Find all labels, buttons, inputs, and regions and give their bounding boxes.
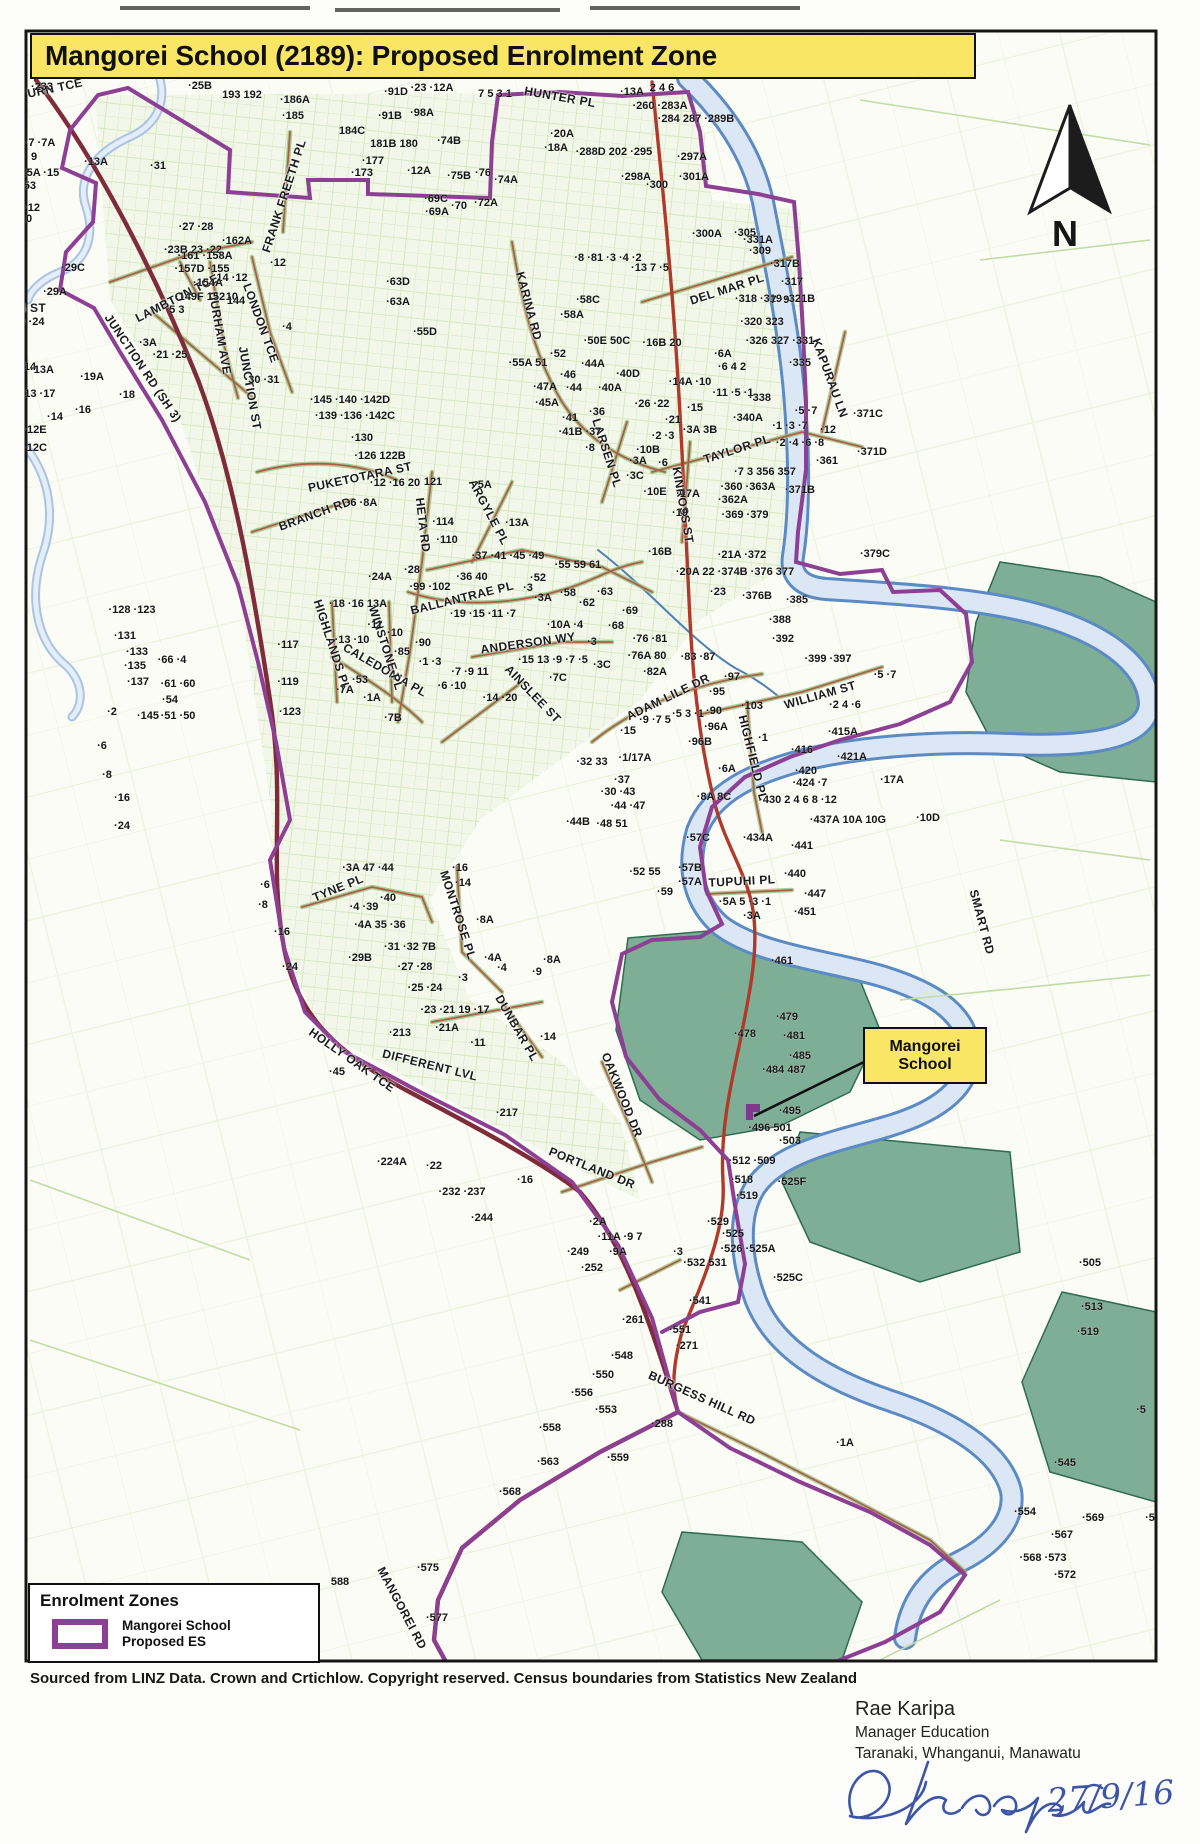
legend-item-label-line2: Proposed ES xyxy=(122,1634,206,1649)
lot-label: ·529 xyxy=(707,1216,729,1228)
lot-label: ·110 xyxy=(436,534,457,546)
lot-label: ·5A 5 ·3 ·1 xyxy=(719,896,771,908)
lot-label: ·3A xyxy=(629,455,647,467)
lot-label: ·569 xyxy=(1082,1512,1104,1524)
lot-label: ·512 ·509 xyxy=(728,1155,775,1167)
scan-artifacts xyxy=(120,8,800,10)
lot-label: ·26 ·22 xyxy=(635,398,670,410)
lot-label: ·76 xyxy=(475,167,491,179)
lot-label: ·3A 47 ·44 xyxy=(342,862,394,874)
lot-label: ·98A xyxy=(410,107,434,119)
lot-label: ·145 xyxy=(137,710,159,722)
lot-label: ·288 xyxy=(651,1418,673,1430)
street-label: S ST xyxy=(25,301,46,315)
lot-label: ·18 ·16 13A xyxy=(329,598,387,610)
lot-label: ·12 xyxy=(820,424,836,436)
lot-label: ·23 ·21 19 ·17 xyxy=(420,1004,489,1016)
lot-label: ·3A xyxy=(534,592,552,604)
lot-label: ·261 xyxy=(622,1314,644,1326)
lot-label: ·558 xyxy=(539,1422,561,1434)
lot-label: 588 xyxy=(331,1576,349,1588)
lot-label: ·90 xyxy=(706,705,722,717)
lot-label: ·4A 35 ·36 xyxy=(354,919,406,931)
lot-label: ·10E xyxy=(643,486,666,498)
lot-label: ·485 xyxy=(789,1050,811,1062)
lot-label: ·6 xyxy=(97,740,107,752)
lot-label: ·7 ·7A xyxy=(25,137,55,149)
lot-label: 181B 180 xyxy=(370,138,418,150)
lot-label: ·21 xyxy=(665,414,681,426)
lot-label: ·68 xyxy=(608,620,624,632)
lot-label: ·447 xyxy=(804,888,826,900)
lot-label: ·3A xyxy=(743,910,761,922)
lot-label: ·232 ·237 xyxy=(438,1186,485,1198)
lot-label: ·13A xyxy=(30,364,54,376)
lot-label: ·244 xyxy=(471,1212,493,1224)
lot-label: ·74A xyxy=(494,174,518,186)
lot-label: ·161 ·158A xyxy=(177,250,232,262)
lot-label: ·4 xyxy=(282,321,292,333)
lot-label: ·57B xyxy=(678,862,702,874)
lot-label: ·1 ·3 xyxy=(419,656,442,668)
lot-label: ·518 xyxy=(731,1174,753,1186)
lot-label: ·376B xyxy=(742,590,772,602)
lot-label: ·1A xyxy=(836,1437,854,1449)
street-label: TAYLOR PL xyxy=(702,432,773,467)
lot-label: ·50E 50C xyxy=(584,335,630,347)
lot-label: ·70 xyxy=(451,200,467,212)
lot-label: ·301A xyxy=(679,171,709,183)
lot-label: 0 ·24 xyxy=(25,316,45,328)
lot-label: ·10A ·4 xyxy=(547,619,583,631)
lot-label: ·284 287 ·289B xyxy=(658,113,734,125)
lot-label: ·559 xyxy=(607,1452,629,1464)
lot-label: ·126 122B xyxy=(354,450,405,462)
lot-label: ·16 xyxy=(75,404,91,416)
lot-label: ·513 xyxy=(1081,1301,1103,1313)
lot-label: ·6A xyxy=(714,348,732,360)
source-note: Sourced from LINZ Data. Crown and Crtich… xyxy=(30,1670,1170,1687)
school-callout-line2: School xyxy=(898,1056,951,1074)
lot-label: ·479 xyxy=(776,1011,798,1023)
lot-label: ·11 ·5 ·1 xyxy=(713,387,754,399)
lot-label: ·379C xyxy=(860,548,890,560)
lot-label: ·424 ·7 xyxy=(793,777,828,789)
lot-label: ·31 ·32 7B xyxy=(384,941,436,953)
lot-label: ·3C xyxy=(593,659,611,671)
lot-label: ·139 ·136 ·142C xyxy=(315,410,395,422)
lot-label: ·96A xyxy=(704,721,728,733)
street-label: HETA RD xyxy=(413,497,434,553)
lot-label: ·25B xyxy=(188,80,212,92)
lot-label: ·3 xyxy=(587,636,597,648)
lot-label: ·317 xyxy=(781,276,803,288)
lot-label: ·31 xyxy=(150,160,166,172)
lot-label: ·91D xyxy=(384,86,408,98)
street-label: KARINA RD xyxy=(513,270,545,342)
lot-label: 193 192 xyxy=(222,89,262,101)
legend-heading: Enrolment Zones xyxy=(40,1591,308,1611)
lot-label: ·572 xyxy=(1054,1569,1076,1581)
lot-label: ·69 xyxy=(622,605,638,617)
lot-label: ·362A xyxy=(718,494,748,506)
lot-label: ·260 ·283A xyxy=(632,100,687,112)
lot-label: ·21A xyxy=(435,1022,459,1034)
lot-label: ·27 ·28 xyxy=(179,221,214,233)
lot-label: ·58 xyxy=(560,587,576,599)
lot-label: ·10B xyxy=(636,444,660,456)
lot-label: ·20A xyxy=(550,128,574,140)
lot-label: ·525C xyxy=(773,1272,803,1284)
lot-label: ·18 xyxy=(119,389,135,401)
lot-label: ·90 xyxy=(415,637,431,649)
lot-label: ·300A xyxy=(692,228,722,240)
lot-label: ·14 xyxy=(455,877,471,889)
lot-label: ·149F 152 xyxy=(175,291,225,303)
lot-label: ·385 xyxy=(786,594,808,606)
lot-label: ·99 ·102 xyxy=(410,581,451,593)
lot-label: ·15 xyxy=(620,725,636,737)
lot-label: ·130 xyxy=(351,432,373,444)
lot-label: ·36 40 xyxy=(456,571,487,583)
lot-label: ·133 xyxy=(126,646,148,658)
lot-label: ·371B xyxy=(785,484,815,496)
lot-label: ·2 xyxy=(107,706,117,718)
lot-label: ·145 ·140 ·142D xyxy=(310,394,390,406)
lot-label: ·415A xyxy=(828,726,858,738)
lot-label: ·525F xyxy=(778,1176,807,1188)
lot-label: ·3A 3B xyxy=(683,424,717,436)
lot-label: ·25A ·15 xyxy=(25,167,59,179)
signatory-name: Rae Karipa xyxy=(855,1698,1081,1721)
legend-box: Enrolment Zones Mangorei School Proposed… xyxy=(28,1583,320,1663)
lot-label: ·288D 202 ·295 xyxy=(576,146,652,158)
street-label: FRANK FREETH PL xyxy=(259,138,309,255)
lot-label: ·13A xyxy=(505,517,529,529)
lot-label: ·4 xyxy=(497,962,507,974)
scanned-map-page: N URN TCEHUNTER PLLAMBTON TCEDURHAM AVEL… xyxy=(0,0,1200,1844)
lot-label: ·23 xyxy=(710,586,726,598)
legend-item-label-line1: Mangorei School xyxy=(122,1618,231,1633)
signatory-role: Manager Education xyxy=(855,1724,1081,1742)
lot-label: ·525 xyxy=(722,1228,744,1240)
lot-label: ·83 ·87 xyxy=(681,651,716,663)
street-label: BRANCH RD xyxy=(277,494,353,533)
street-label: ANDERSON WY xyxy=(480,629,577,656)
lot-label: ·137 xyxy=(127,676,149,688)
lot-label: 144 xyxy=(227,295,245,307)
lot-label: ·371C xyxy=(853,408,883,420)
lot-label: ·5 ·7 xyxy=(795,405,818,417)
lot-label: ·63 xyxy=(597,586,613,598)
lot-label: ·326 327 ·331 xyxy=(746,335,815,347)
lot-label: ·6 ·10 xyxy=(438,680,467,692)
lot-label: ·8 xyxy=(585,442,595,454)
lot-label: ·6A xyxy=(718,763,736,775)
lot-label: ·103 xyxy=(741,700,763,712)
lot-label: ·55D xyxy=(413,326,437,338)
lot-label: ·3A xyxy=(139,337,157,349)
lot-label: ·30 ·43 xyxy=(601,786,636,798)
lot-label: ·392 xyxy=(772,633,794,645)
lot-label: ·309 xyxy=(749,245,771,257)
lot-label: ·8 xyxy=(102,769,112,781)
lot-label: ·55A 51 xyxy=(509,357,548,369)
lot-label: ·1 ·3 ·7 xyxy=(772,420,807,432)
lot-label: ·62 xyxy=(579,597,595,609)
lot-label: ·1/17A xyxy=(618,752,651,764)
lot-label: ·217 xyxy=(496,1107,518,1119)
lot-label: ·46 xyxy=(560,369,576,381)
lot-label: ·545 xyxy=(1054,1457,1076,1469)
lot-label: ·63A xyxy=(386,296,410,308)
lot-label: ·252 xyxy=(581,1262,603,1274)
lot-label: ·51 ·50 xyxy=(161,710,196,722)
street-label: MANGOREI RD xyxy=(374,1565,429,1652)
lot-label: ·577 xyxy=(426,1612,448,1624)
lot-label: ·360 ·363A xyxy=(720,481,775,493)
lot-label: ·437A 10A 10G xyxy=(810,814,886,826)
lot-label: ·21A ·372 xyxy=(718,549,767,561)
lot-label: ·128 ·123 xyxy=(108,604,155,616)
lot-label: ·119 xyxy=(277,676,298,688)
lot-label: ·66 ·4 xyxy=(158,654,187,666)
lot-label: ·13 ·10 xyxy=(335,634,370,646)
lot-label: ·335 xyxy=(789,357,811,369)
lot-label: ·519 xyxy=(736,1190,758,1202)
lot-label: ·8A 8C xyxy=(697,791,731,803)
lot-label: ·63D xyxy=(386,276,410,288)
lot-label: ·29A xyxy=(43,286,67,298)
lot-label: ·496 501 xyxy=(748,1122,791,1134)
lot-label: ·173 xyxy=(351,167,373,179)
lot-label: ·388 xyxy=(769,614,791,626)
lot-label: ·2 ·3 xyxy=(652,430,675,442)
lot-label: ·526 ·525A xyxy=(720,1243,775,1255)
lot-label: ·6 ·8A xyxy=(347,497,378,509)
lot-label: ·9 xyxy=(532,966,542,978)
street-label: TUPUHI PL xyxy=(708,872,776,889)
lot-label: ·37 xyxy=(614,774,630,786)
lot-label: 2 4 6 xyxy=(650,82,674,94)
map-title-banner: Mangorei School (2189): Proposed Enrolme… xyxy=(30,33,976,79)
lot-label: ·69C xyxy=(424,193,448,205)
lot-label: ·48 51 xyxy=(596,818,627,830)
lot-label: ·29B xyxy=(348,952,372,964)
lot-label: ·3C xyxy=(626,470,644,482)
zone-boundary-swatch xyxy=(52,1619,108,1649)
lot-label: ·117 xyxy=(277,639,298,651)
lot-label: ·21 ·25 xyxy=(153,349,188,361)
lot-label: ·7C xyxy=(549,672,567,684)
lot-label: ·8 xyxy=(258,899,268,911)
street-label: JUNCTION RD (SH 3) xyxy=(102,311,185,424)
lot-label: ·19 xyxy=(672,507,688,519)
lot-label: ·16B xyxy=(648,546,672,558)
lot-label: ·575 xyxy=(417,1562,439,1574)
lot-label: ·371D xyxy=(857,446,887,458)
lot-label: ·18A xyxy=(544,142,568,154)
lot-label: ·59 xyxy=(657,886,673,898)
lot-label: ·541 xyxy=(689,1295,711,1307)
lot-label: ·162A xyxy=(222,235,252,247)
lot-label: ·40D xyxy=(616,368,640,380)
lot-label: ·29C xyxy=(61,262,85,274)
lot-label: ·440 xyxy=(784,868,806,880)
street-label: SMART RD xyxy=(967,888,998,956)
lot-label: ·36 xyxy=(589,406,605,418)
lot-label: ·58C xyxy=(576,294,600,306)
street-label: JUNCTION ST xyxy=(236,345,264,431)
lot-label: ·11 xyxy=(367,619,382,631)
lot-label: ·519 xyxy=(1077,1326,1099,1338)
lot-label: ·484 487 xyxy=(762,1064,805,1076)
lot-label: ·568 ·573 xyxy=(1019,1552,1066,1564)
lot-label: ·7 ·9 xyxy=(767,294,790,306)
lot-label: ·157D ·155 xyxy=(174,263,229,275)
lot-label: ·271 xyxy=(676,1340,698,1352)
lot-label: ·12 xyxy=(270,257,286,269)
lot-label: ·11 xyxy=(470,1037,485,1049)
lot-label: ·12C xyxy=(25,442,47,454)
lot-label: ·45A xyxy=(535,397,559,409)
lot-label: ·9 ·7 5 xyxy=(639,714,671,726)
lot-label: ·186A xyxy=(280,94,310,106)
lot-label: ·6 xyxy=(658,457,668,469)
lot-label: ·249 xyxy=(567,1246,589,1258)
lot-label: ·25 ·24 xyxy=(408,982,443,994)
lot-label: 7 5 3 1 xyxy=(478,88,512,100)
lot-label: ·41B ·37 xyxy=(559,426,602,438)
legend-item-label: Mangorei School Proposed ES xyxy=(122,1618,231,1649)
lot-label: ·7 3 356 357 xyxy=(734,466,796,478)
lot-label: ·52 55 xyxy=(629,866,660,878)
lot-label: ·5 ·7 xyxy=(874,669,897,681)
lot-label: ·14 xyxy=(540,1031,556,1043)
lot-label: ·44 ·47 xyxy=(611,800,646,812)
lot-label: ·23 ·12A xyxy=(411,82,454,94)
lot-label: ·13 ·17 xyxy=(25,388,55,400)
street-label: OAKWOOD DR xyxy=(599,1051,646,1140)
lot-label: ·13 7 ·5 xyxy=(631,262,669,274)
lot-label: ·57C xyxy=(686,832,710,844)
lot-label: ·6 4 2 xyxy=(718,361,746,373)
lot-label: ·75B xyxy=(447,170,471,182)
lot-label: ·17A xyxy=(880,774,904,786)
lot-label: ·24 xyxy=(114,820,130,832)
lot-label: ·1 xyxy=(758,732,768,744)
lot-label: ·14 xyxy=(47,411,63,423)
lot-label: ·369 ·379 xyxy=(721,509,768,521)
lot-label: ·14A ·10 xyxy=(669,376,711,388)
lot-label: ·44 xyxy=(566,382,582,394)
lot-label: ·19 ·15 ·11 ·7 xyxy=(450,608,516,620)
lot-label: ·532 531 xyxy=(683,1257,726,1269)
lot-label: ·5A xyxy=(474,479,492,491)
lot-label: ·17A xyxy=(676,488,700,500)
lot-label: ·3 xyxy=(523,582,533,594)
lot-label: ·44B xyxy=(566,816,590,828)
street-label: PORTLAND DR xyxy=(547,1144,637,1191)
lot-label: ·2A xyxy=(589,1216,607,1228)
lot-label: ·4 ·39 xyxy=(350,901,379,913)
lot-label: 9 xyxy=(31,151,37,163)
lot-label: ·434A xyxy=(743,832,773,844)
lot-label: ·82A xyxy=(643,666,667,678)
lot-label: ·213 xyxy=(389,1027,411,1039)
lot-label: ·74B xyxy=(437,135,461,147)
map-title: Mangorei School (2189): Proposed Enrolme… xyxy=(45,40,717,72)
lot-label: ·12 ·16 20 xyxy=(370,477,420,489)
lot-label: ·58A xyxy=(560,309,584,321)
lot-label: ·420 xyxy=(795,765,817,777)
lot-label: ·72A xyxy=(474,197,498,209)
lot-label: ·9A xyxy=(609,1246,627,1258)
lot-label: ·548 xyxy=(611,1350,633,1362)
lot-label: ·505 xyxy=(1079,1257,1101,1269)
lot-label: ·2 4 ·6 xyxy=(829,699,861,711)
lot-label: ·5 3 ·1 xyxy=(672,708,704,720)
lot-label: ·15 xyxy=(687,402,703,414)
lot-label: ·52 xyxy=(550,348,566,360)
lot-label: 10 xyxy=(25,213,32,225)
lot-label: ·233 xyxy=(31,81,53,93)
street-label: KINROSS ST xyxy=(669,466,696,545)
lot-label: ·76A 80 xyxy=(628,650,667,662)
lot-label: ·416 xyxy=(791,744,813,756)
lot-label: ·5 xyxy=(1145,1512,1155,1524)
lot-label: ·16 xyxy=(517,1174,533,1186)
lot-label: ·76 ·81 xyxy=(633,633,668,645)
lot-label: ·37 ·41 ·45 ·49 xyxy=(472,550,545,562)
lot-label: ·16B 20 xyxy=(642,337,681,349)
lot-label: ·45 xyxy=(329,1066,345,1078)
lot-label: ·6 xyxy=(260,879,270,891)
lot-label: ·3 xyxy=(673,1246,683,1258)
lot-label: ·481 xyxy=(783,1030,805,1042)
lot-label: ·300 xyxy=(646,179,668,191)
lot-label: ·338 xyxy=(749,392,771,404)
lot-label: ·3 xyxy=(458,972,468,984)
lot-label: ·461 xyxy=(771,955,793,967)
lot-label: ·131 xyxy=(114,630,136,642)
lot-label: ·16 xyxy=(452,862,468,874)
lot-label: ·32 33 xyxy=(576,756,607,768)
lot-label: ·91B xyxy=(378,110,402,122)
lot-label: ·478 xyxy=(734,1028,756,1040)
lot-label: ·320 323 xyxy=(740,316,783,328)
lot-label: ·15 13 ·9 ·7 ·5 xyxy=(518,654,588,666)
lot-label: ·224A xyxy=(377,1156,407,1168)
lot-label: ·551 xyxy=(669,1324,691,1336)
lot-label: ·12E xyxy=(25,424,47,436)
lot-label: ·556 xyxy=(571,1387,593,1399)
lot-label: ·13A xyxy=(84,156,108,168)
lot-label: ·567 xyxy=(1051,1529,1073,1541)
lot-label: ·177 xyxy=(362,155,384,167)
lot-label: ·430 2 4 6 8 ·12 xyxy=(759,794,837,806)
street-label: HIGHFIELD PL xyxy=(736,714,771,803)
street-label: DIFFERENT LVL xyxy=(381,1046,479,1083)
lot-label: ·24 xyxy=(282,961,298,973)
lot-label: ·54 xyxy=(162,694,178,706)
lot-label: ·553 xyxy=(595,1404,617,1416)
lot-label: ·53 xyxy=(352,674,368,686)
lot-label: ·114 xyxy=(432,516,453,528)
street-label: DUNBAR PL xyxy=(492,992,541,1063)
lot-label: ·96B xyxy=(688,736,712,748)
lot-label: ·14 ·20 xyxy=(483,692,518,704)
